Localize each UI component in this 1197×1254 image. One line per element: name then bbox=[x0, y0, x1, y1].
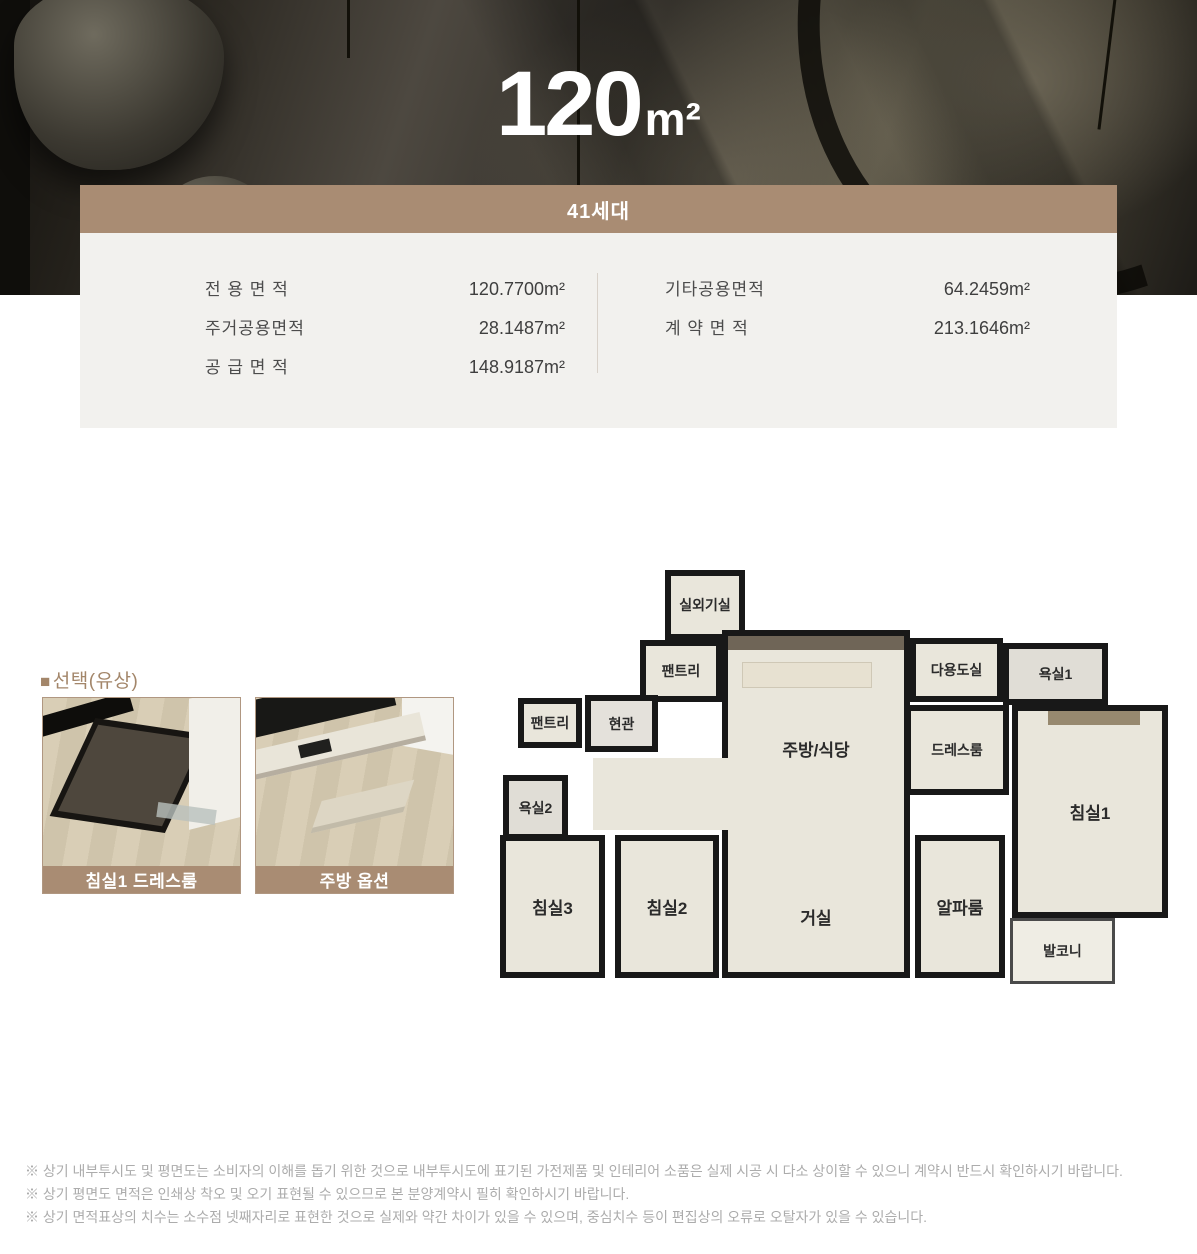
room-label: 침실3 bbox=[532, 894, 573, 919]
room-bathroom2: 욕실2 bbox=[503, 775, 568, 840]
bedroom1-vanity bbox=[1048, 711, 1140, 725]
household-count-banner: 41세대 bbox=[80, 185, 1117, 233]
area-value: 28.1487m² bbox=[479, 318, 565, 339]
area-value: 120.7700m² bbox=[469, 279, 565, 300]
area-row-supply: 공 급 면 적 148.9187m² bbox=[205, 353, 565, 392]
paid-options-heading-label: 선택(유상) bbox=[53, 671, 139, 692]
room-label: 주방/식당 bbox=[782, 741, 849, 760]
area-row-exclusive: 전 용 면 적 120.7700m² bbox=[205, 275, 565, 314]
room-label: 침실2 bbox=[647, 894, 688, 919]
disclaimer-line: ※ 상기 내부투시도 및 평면도는 소비자의 이해를 돕기 위한 것으로 내부투… bbox=[25, 1160, 1180, 1183]
option-thumbnail-kitchen-option bbox=[256, 698, 453, 866]
room-alpha: 알파룸 bbox=[915, 835, 1005, 978]
area-info-panel: 전 용 면 적 120.7700m² 주거공용면적 28.1487m² 공 급 … bbox=[80, 233, 1117, 428]
area-row-contract: 계 약 면 적 213.1646m² bbox=[665, 314, 1030, 353]
hallway-opening bbox=[593, 758, 729, 830]
room-label: 발코니 bbox=[1043, 941, 1082, 961]
room-label: 실외기실 bbox=[679, 595, 731, 615]
room-bedroom1: 침실1 bbox=[1012, 705, 1168, 918]
room-label: 다용도실 bbox=[931, 660, 983, 680]
paid-options-heading: ■선택(유상) bbox=[40, 666, 138, 693]
area-row-other-common: 기타공용면적 64.2459m² bbox=[665, 275, 1030, 314]
household-count-label: 41세대 bbox=[567, 195, 630, 224]
room-label: 알파룸 bbox=[937, 894, 984, 919]
unit-type-page: 120m² 41세대 전 용 면 적 120.7700m² 주거공용면적 28.… bbox=[0, 0, 1197, 1254]
option-caption: 침실1 드레스룸 bbox=[43, 866, 240, 893]
option-caption-label: 주방 옵션 bbox=[320, 867, 390, 892]
area-info-left-column: 전 용 면 적 120.7700m² 주거공용면적 28.1487m² 공 급 … bbox=[205, 275, 565, 392]
option-card-kitchen-option[interactable]: 주방 옵션 bbox=[255, 697, 454, 894]
area-label: 전 용 면 적 bbox=[205, 275, 289, 300]
option-caption-label: 침실1 드레스룸 bbox=[85, 867, 197, 892]
unit-size-value: 120 bbox=[496, 53, 641, 155]
kitchen-island bbox=[742, 662, 872, 688]
option-card-bedroom1-dressroom[interactable]: 침실1 드레스룸 bbox=[42, 697, 241, 894]
column-divider bbox=[597, 273, 598, 373]
render-island-shape bbox=[311, 780, 414, 833]
room-label: 드레스룸 bbox=[931, 740, 983, 760]
disclaimer-notes: ※ 상기 내부투시도 및 평면도는 소비자의 이해를 돕기 위한 것으로 내부투… bbox=[25, 1160, 1180, 1229]
area-value: 148.9187m² bbox=[469, 357, 565, 378]
room-balcony: 발코니 bbox=[1010, 918, 1115, 984]
area-label: 계 약 면 적 bbox=[665, 314, 749, 339]
unit-size-title: 120m² bbox=[0, 52, 1197, 157]
room-label: 침실1 bbox=[1070, 799, 1111, 824]
room-pantry-left: 팬트리 bbox=[518, 698, 582, 748]
room-entrance: 현관 bbox=[585, 695, 658, 752]
area-value: 64.2459m² bbox=[944, 279, 1030, 300]
disclaimer-line: ※ 상기 평면도 면적은 인쇄상 착오 및 오기 표현될 수 있으므로 본 분양… bbox=[25, 1183, 1180, 1206]
area-label: 주거공용면적 bbox=[205, 314, 305, 339]
unit-size-unit: m² bbox=[645, 93, 701, 145]
floor-plan: 실외기실 팬트리 주방/식당 거실 다용도실 욕실1 팬트리 현관 욕실2 드레… bbox=[497, 563, 1175, 990]
room-label: 팬트리 bbox=[531, 713, 570, 733]
room-label: 팬트리 bbox=[662, 661, 701, 681]
room-dressroom: 드레스룸 bbox=[905, 705, 1009, 795]
room-label: 욕실1 bbox=[1039, 664, 1073, 684]
option-caption: 주방 옵션 bbox=[256, 866, 453, 893]
kitchen-counter bbox=[728, 636, 904, 650]
room-pantry-top: 팬트리 bbox=[640, 640, 722, 702]
option-thumbnail-bedroom1-dressroom bbox=[43, 698, 240, 866]
area-label: 공 급 면 적 bbox=[205, 353, 289, 378]
area-label: 기타공용면적 bbox=[665, 275, 765, 300]
lamp-cord bbox=[347, 0, 350, 58]
unit-info-card: 41세대 전 용 면 적 120.7700m² 주거공용면적 28.1487m²… bbox=[80, 185, 1117, 428]
room-label: 거실 bbox=[800, 909, 831, 928]
room-bathroom1: 욕실1 bbox=[1003, 643, 1108, 705]
room-label: 욕실2 bbox=[519, 798, 553, 818]
room-bedroom3: 침실3 bbox=[500, 835, 605, 978]
disclaimer-line: ※ 상기 면적표상의 치수는 소수점 넷째자리로 표현한 것으로 실제와 약간 … bbox=[25, 1206, 1180, 1229]
area-row-residential-common: 주거공용면적 28.1487m² bbox=[205, 314, 565, 353]
room-label: 현관 bbox=[609, 714, 635, 734]
room-bedroom2: 침실2 bbox=[615, 835, 719, 978]
area-value: 213.1646m² bbox=[934, 318, 1030, 339]
room-kitchen-living-open-space: 주방/식당 거실 bbox=[722, 630, 910, 978]
area-info-right-column: 기타공용면적 64.2459m² 계 약 면 적 213.1646m² bbox=[665, 275, 1030, 353]
room-utility: 다용도실 bbox=[910, 638, 1003, 702]
square-bullet-icon: ■ bbox=[40, 672, 51, 691]
